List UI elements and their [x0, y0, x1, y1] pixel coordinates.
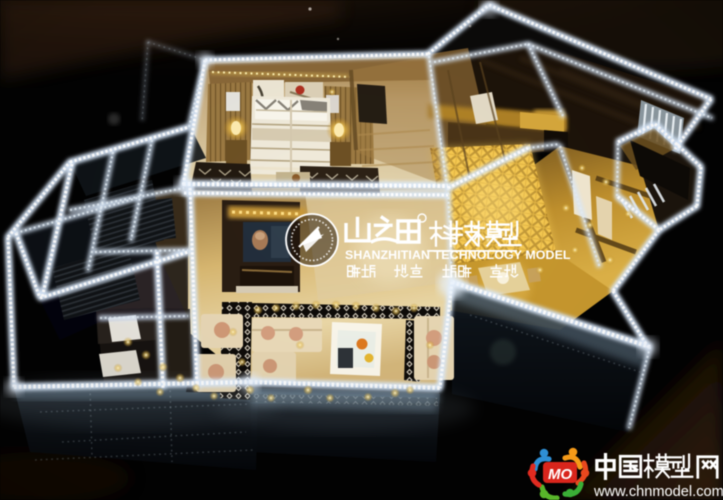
svg-text:www.chnmodel.com: www.chnmodel.com — [593, 484, 723, 500]
svg-text:MO: MO — [548, 466, 572, 483]
svg-text:SHANZHITIAN TECHNOLOGY MODEL: SHANZHITIAN TECHNOLOGY MODEL — [345, 248, 571, 262]
